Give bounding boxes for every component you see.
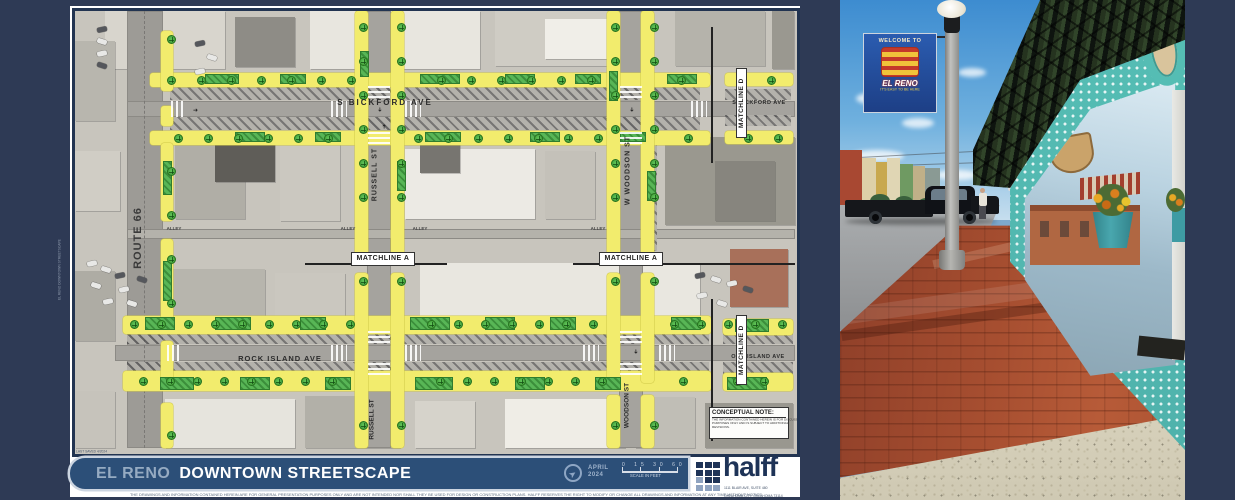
crosswalk xyxy=(368,363,390,375)
tree-icon xyxy=(650,159,659,168)
tree-icon xyxy=(760,377,769,386)
tree-icon xyxy=(611,125,620,134)
building-roof xyxy=(75,391,115,448)
road xyxy=(115,345,795,361)
building-roof xyxy=(165,399,295,448)
matchline-d-line-north xyxy=(711,27,713,163)
tree-icon xyxy=(571,377,580,386)
halff-address-line: 1111 BLAIR AVE, SUITE 480 xyxy=(724,486,783,491)
tree-icon xyxy=(467,76,476,85)
matchline-a-label-west: MATCHLINE A xyxy=(351,252,415,266)
tree-icon xyxy=(167,255,176,264)
tree-icon xyxy=(534,134,543,143)
crosswalk xyxy=(171,101,185,117)
road-arrow: ➜ xyxy=(627,107,635,115)
building-roof xyxy=(772,11,794,69)
tree-icon xyxy=(481,320,490,329)
building-roof xyxy=(420,143,460,173)
tree-icon xyxy=(167,167,176,176)
conceptual-note: CONCEPTUAL NOTE: THE INFORMATION CONTAIN… xyxy=(709,407,789,439)
lamp-base xyxy=(939,250,965,270)
tree-icon xyxy=(497,76,506,85)
logo-grid-square xyxy=(696,462,703,468)
tree-icon xyxy=(474,134,483,143)
building-roof xyxy=(75,151,120,211)
label-s-bickford-ave-right: S BICKFORD AVE xyxy=(723,100,795,106)
tree-icon xyxy=(359,125,368,134)
welcome-banner: WELCOME TO EL RENO IT'S EASY TO BE HERE xyxy=(863,33,937,113)
planting-bed xyxy=(163,261,172,301)
tree-icon xyxy=(247,377,256,386)
logo-grid-square xyxy=(705,470,712,476)
tree-icon xyxy=(650,57,659,66)
scale-line xyxy=(622,471,678,473)
streetscape-plan-sheet: ➜➜➜➜➜ ROUTE 66 RUSSELL ST RUSSELL ST W W… xyxy=(70,6,800,497)
tree-icon xyxy=(294,134,303,143)
planting-bed xyxy=(425,132,461,142)
building-roof xyxy=(415,401,475,448)
tree-icon xyxy=(767,76,776,85)
label-alley-3: ALLEY xyxy=(405,226,435,231)
tree-icon xyxy=(427,320,436,329)
streetscape-highlight xyxy=(641,273,654,383)
scale-bar: 0 15 30 60 SCALE IN FEET xyxy=(622,464,680,482)
tree-icon xyxy=(397,159,406,168)
tree-icon xyxy=(650,193,659,202)
tree-icon xyxy=(611,91,620,100)
logo-grid-square xyxy=(696,470,703,476)
logo-grid-square xyxy=(713,485,720,491)
tree-icon xyxy=(157,320,166,329)
tree-icon xyxy=(265,320,274,329)
logo-grid-square xyxy=(696,477,703,483)
logo-grid-square xyxy=(713,470,720,476)
streetscape-highlight xyxy=(355,11,368,261)
car xyxy=(115,272,126,279)
tree-icon xyxy=(650,23,659,32)
tree-icon xyxy=(650,125,659,134)
scale-tick xyxy=(640,467,641,472)
tree-icon xyxy=(167,76,176,85)
logo-grid-square xyxy=(713,462,720,468)
tree-icon xyxy=(611,159,620,168)
road-arrow: ➜ xyxy=(375,107,383,115)
sheet-title-project: DOWNTOWN STREETSCAPE xyxy=(179,465,411,483)
tree-icon xyxy=(650,277,659,286)
tree-icon xyxy=(274,377,283,386)
matchline-a-label-east: MATCHLINE A xyxy=(599,252,663,266)
tree-icon xyxy=(347,76,356,85)
parking-hatch xyxy=(725,115,791,126)
scale-tick xyxy=(622,467,623,472)
planting-bed xyxy=(415,377,453,390)
tree-icon xyxy=(287,76,296,85)
label-alley-1: ALLEY xyxy=(159,226,189,231)
plot-stamp: LAST SAVED 4/2024 xyxy=(76,450,107,454)
building-roof xyxy=(280,141,340,221)
label-alley-2: ALLEY xyxy=(333,226,363,231)
tree-icon xyxy=(184,320,193,329)
car xyxy=(695,272,706,279)
tree-icon xyxy=(611,23,620,32)
tree-icon xyxy=(650,421,659,430)
tree-icon xyxy=(238,320,247,329)
lamp-globe xyxy=(937,0,966,18)
flower-planter-pot xyxy=(1172,208,1185,242)
banner-marquee-graphic xyxy=(881,47,919,77)
conceptual-note-body: THE INFORMATION CONTAINED HEREIN IS FOR … xyxy=(712,418,800,429)
tree-icon xyxy=(211,320,220,329)
tree-icon xyxy=(444,134,453,143)
tree-icon xyxy=(611,421,620,430)
tree-icon xyxy=(301,377,310,386)
road-arrow: ➜ xyxy=(631,349,639,357)
label-russell-st-south: RUSSELL ST xyxy=(369,385,376,455)
tree-icon xyxy=(437,76,446,85)
crosswalk xyxy=(620,85,642,98)
tree-icon xyxy=(517,377,526,386)
label-rock-island-ave-right: OCK ISLAND AVE xyxy=(720,354,796,360)
building-roof xyxy=(675,11,765,66)
tree-icon xyxy=(414,134,423,143)
tree-icon xyxy=(397,193,406,202)
crosswalk xyxy=(368,85,390,98)
downtown-sidewalk-photo: WELCOME TO EL RENO IT'S EASY TO BE HERE xyxy=(840,0,1185,500)
label-russell-st: RUSSELL ST xyxy=(372,140,379,210)
sheet-title-city: EL RENO xyxy=(96,465,170,483)
scale-units-label: SCALE IN FEET xyxy=(630,474,661,478)
banner-line3: IT'S EASY TO BE HERE xyxy=(878,88,921,92)
matchline-d-label-north: MATCHLINE D xyxy=(736,68,747,138)
matchline-d-label-south: MATCHLINE D xyxy=(736,315,747,385)
tree-icon xyxy=(611,193,620,202)
scale-tick xyxy=(677,467,678,472)
tree-icon xyxy=(557,76,566,85)
flowers xyxy=(1166,188,1185,212)
parking-hatch xyxy=(170,117,700,130)
sheet-disclaimer: THE DRAWINGS AND INFORMATION CONTAINED H… xyxy=(130,493,763,497)
tree-icon xyxy=(220,377,229,386)
slide: EL RENO DOWNTOWN STREETSCAPE ➜➜➜➜➜ ROUTE… xyxy=(0,0,1235,500)
streetscape-highlight xyxy=(607,273,620,383)
tree-icon xyxy=(167,211,176,220)
car xyxy=(87,260,98,267)
logo-grid-square xyxy=(705,477,712,483)
logo-grid-square xyxy=(696,485,703,491)
conceptual-note-title: CONCEPTUAL NOTE: xyxy=(712,409,786,418)
road xyxy=(127,229,795,239)
doormat xyxy=(1137,336,1185,361)
logo-grid-square xyxy=(705,462,712,468)
sheet-date-month: APRIL xyxy=(588,465,609,472)
building-roof xyxy=(545,151,595,219)
tree-icon xyxy=(697,320,706,329)
tree-icon xyxy=(397,23,406,32)
tree-icon xyxy=(508,320,517,329)
tree-icon xyxy=(564,134,573,143)
tree-icon xyxy=(504,134,513,143)
streetscape-highlight xyxy=(161,403,173,448)
parking-hatch xyxy=(725,89,791,100)
tree-icon xyxy=(670,320,679,329)
crosswalk xyxy=(167,345,181,361)
building-roof xyxy=(730,249,788,307)
building-roof xyxy=(235,17,295,67)
scale-tick xyxy=(659,467,660,472)
halff-logo-wordmark: halff xyxy=(723,451,777,483)
tree-icon xyxy=(359,193,368,202)
sheet-date-year: 2024 xyxy=(588,472,609,479)
lamp-pole xyxy=(945,30,959,255)
tree-icon xyxy=(544,377,553,386)
tree-icon xyxy=(598,377,607,386)
road-arrow: ➜ xyxy=(193,107,201,115)
tree-icon xyxy=(359,277,368,286)
tree-icon xyxy=(319,320,328,329)
streetscape-highlight xyxy=(607,11,620,261)
tree-icon xyxy=(397,57,406,66)
tree-icon xyxy=(650,91,659,100)
tree-icon xyxy=(535,320,544,329)
car xyxy=(710,276,721,284)
tree-icon xyxy=(328,377,337,386)
crosswalk xyxy=(583,345,599,361)
tree-icon xyxy=(130,320,139,329)
sheet-date: APRIL 2024 xyxy=(588,465,609,479)
tree-icon xyxy=(324,134,333,143)
tree-icon xyxy=(174,134,183,143)
tree-icon xyxy=(359,159,368,168)
tree-icon xyxy=(359,23,368,32)
label-woodson-st-south: WOODSON ST xyxy=(624,371,631,441)
car xyxy=(697,292,708,299)
label-alley-4: ALLEY xyxy=(583,226,613,231)
building-roof xyxy=(715,161,775,221)
tree-icon xyxy=(193,377,202,386)
tree-icon xyxy=(139,377,148,386)
sheet-edge-stamp: EL RENO DOWNTOWN STREETSCAPE xyxy=(58,239,62,300)
tree-icon xyxy=(359,421,368,430)
tree-icon xyxy=(234,134,243,143)
logo-grid-square xyxy=(713,477,720,483)
tree-icon xyxy=(724,320,733,329)
tree-icon xyxy=(167,431,176,440)
crosswalk xyxy=(620,331,642,343)
tree-icon xyxy=(454,320,463,329)
tree-icon xyxy=(684,134,693,143)
tree-icon xyxy=(589,320,598,329)
flowers xyxy=(1084,184,1140,216)
tree-icon xyxy=(166,377,175,386)
tree-icon xyxy=(317,76,326,85)
tree-icon xyxy=(594,134,603,143)
streetscape-highlight xyxy=(391,11,404,261)
tree-icon xyxy=(397,125,406,134)
flower-planter-pot xyxy=(1090,212,1136,248)
building-roof xyxy=(75,271,115,341)
tree-icon xyxy=(197,76,206,85)
car xyxy=(716,300,727,308)
tree-icon xyxy=(167,35,176,44)
tree-icon xyxy=(774,134,783,143)
tree-icon xyxy=(527,76,536,85)
tree-icon xyxy=(611,57,620,66)
road-arrow: ➜ xyxy=(381,121,389,129)
building-roof xyxy=(75,41,115,121)
tree-icon xyxy=(562,320,571,329)
tree-icon xyxy=(264,134,273,143)
tree-icon xyxy=(751,320,760,329)
tree-icon xyxy=(397,277,406,286)
banner-line2: EL RENO xyxy=(864,79,936,88)
tree-icon xyxy=(359,57,368,66)
label-rock-island-ave: ROCK ISLAND AVE xyxy=(225,354,335,363)
aerial-plan-map: ➜➜➜➜➜ ROUTE 66 RUSSELL ST RUSSELL ST W W… xyxy=(72,8,800,457)
logo-grid-square xyxy=(705,485,712,491)
crosswalk xyxy=(691,101,707,117)
label-s-bickford-ave: S BICKFORD AVE xyxy=(290,98,480,107)
tree-icon xyxy=(167,299,176,308)
banner-line1: WELCOME TO xyxy=(864,38,936,44)
planting-bed xyxy=(160,377,194,390)
tree-icon xyxy=(677,76,686,85)
halff-logo-grid-icon xyxy=(696,462,720,491)
tree-icon xyxy=(436,377,445,386)
tree-icon xyxy=(463,377,472,386)
label-route-66: ROUTE 66 xyxy=(132,203,144,273)
tree-icon xyxy=(227,76,236,85)
tree-icon xyxy=(679,377,688,386)
tree-icon xyxy=(257,76,266,85)
north-arrow-icon: ➤ xyxy=(564,464,582,482)
tree-icon xyxy=(778,320,787,329)
tree-icon xyxy=(292,320,301,329)
tree-icon xyxy=(346,320,355,329)
crosswalk xyxy=(659,345,675,361)
tree-icon xyxy=(611,277,620,286)
tree-icon xyxy=(204,134,213,143)
crosswalk xyxy=(405,345,421,361)
tree-icon xyxy=(587,76,596,85)
tree-icon xyxy=(397,421,406,430)
label-w-woodson-st: W WOODSON ST xyxy=(625,136,632,206)
tree-icon xyxy=(490,377,499,386)
crosswalk xyxy=(368,331,390,343)
